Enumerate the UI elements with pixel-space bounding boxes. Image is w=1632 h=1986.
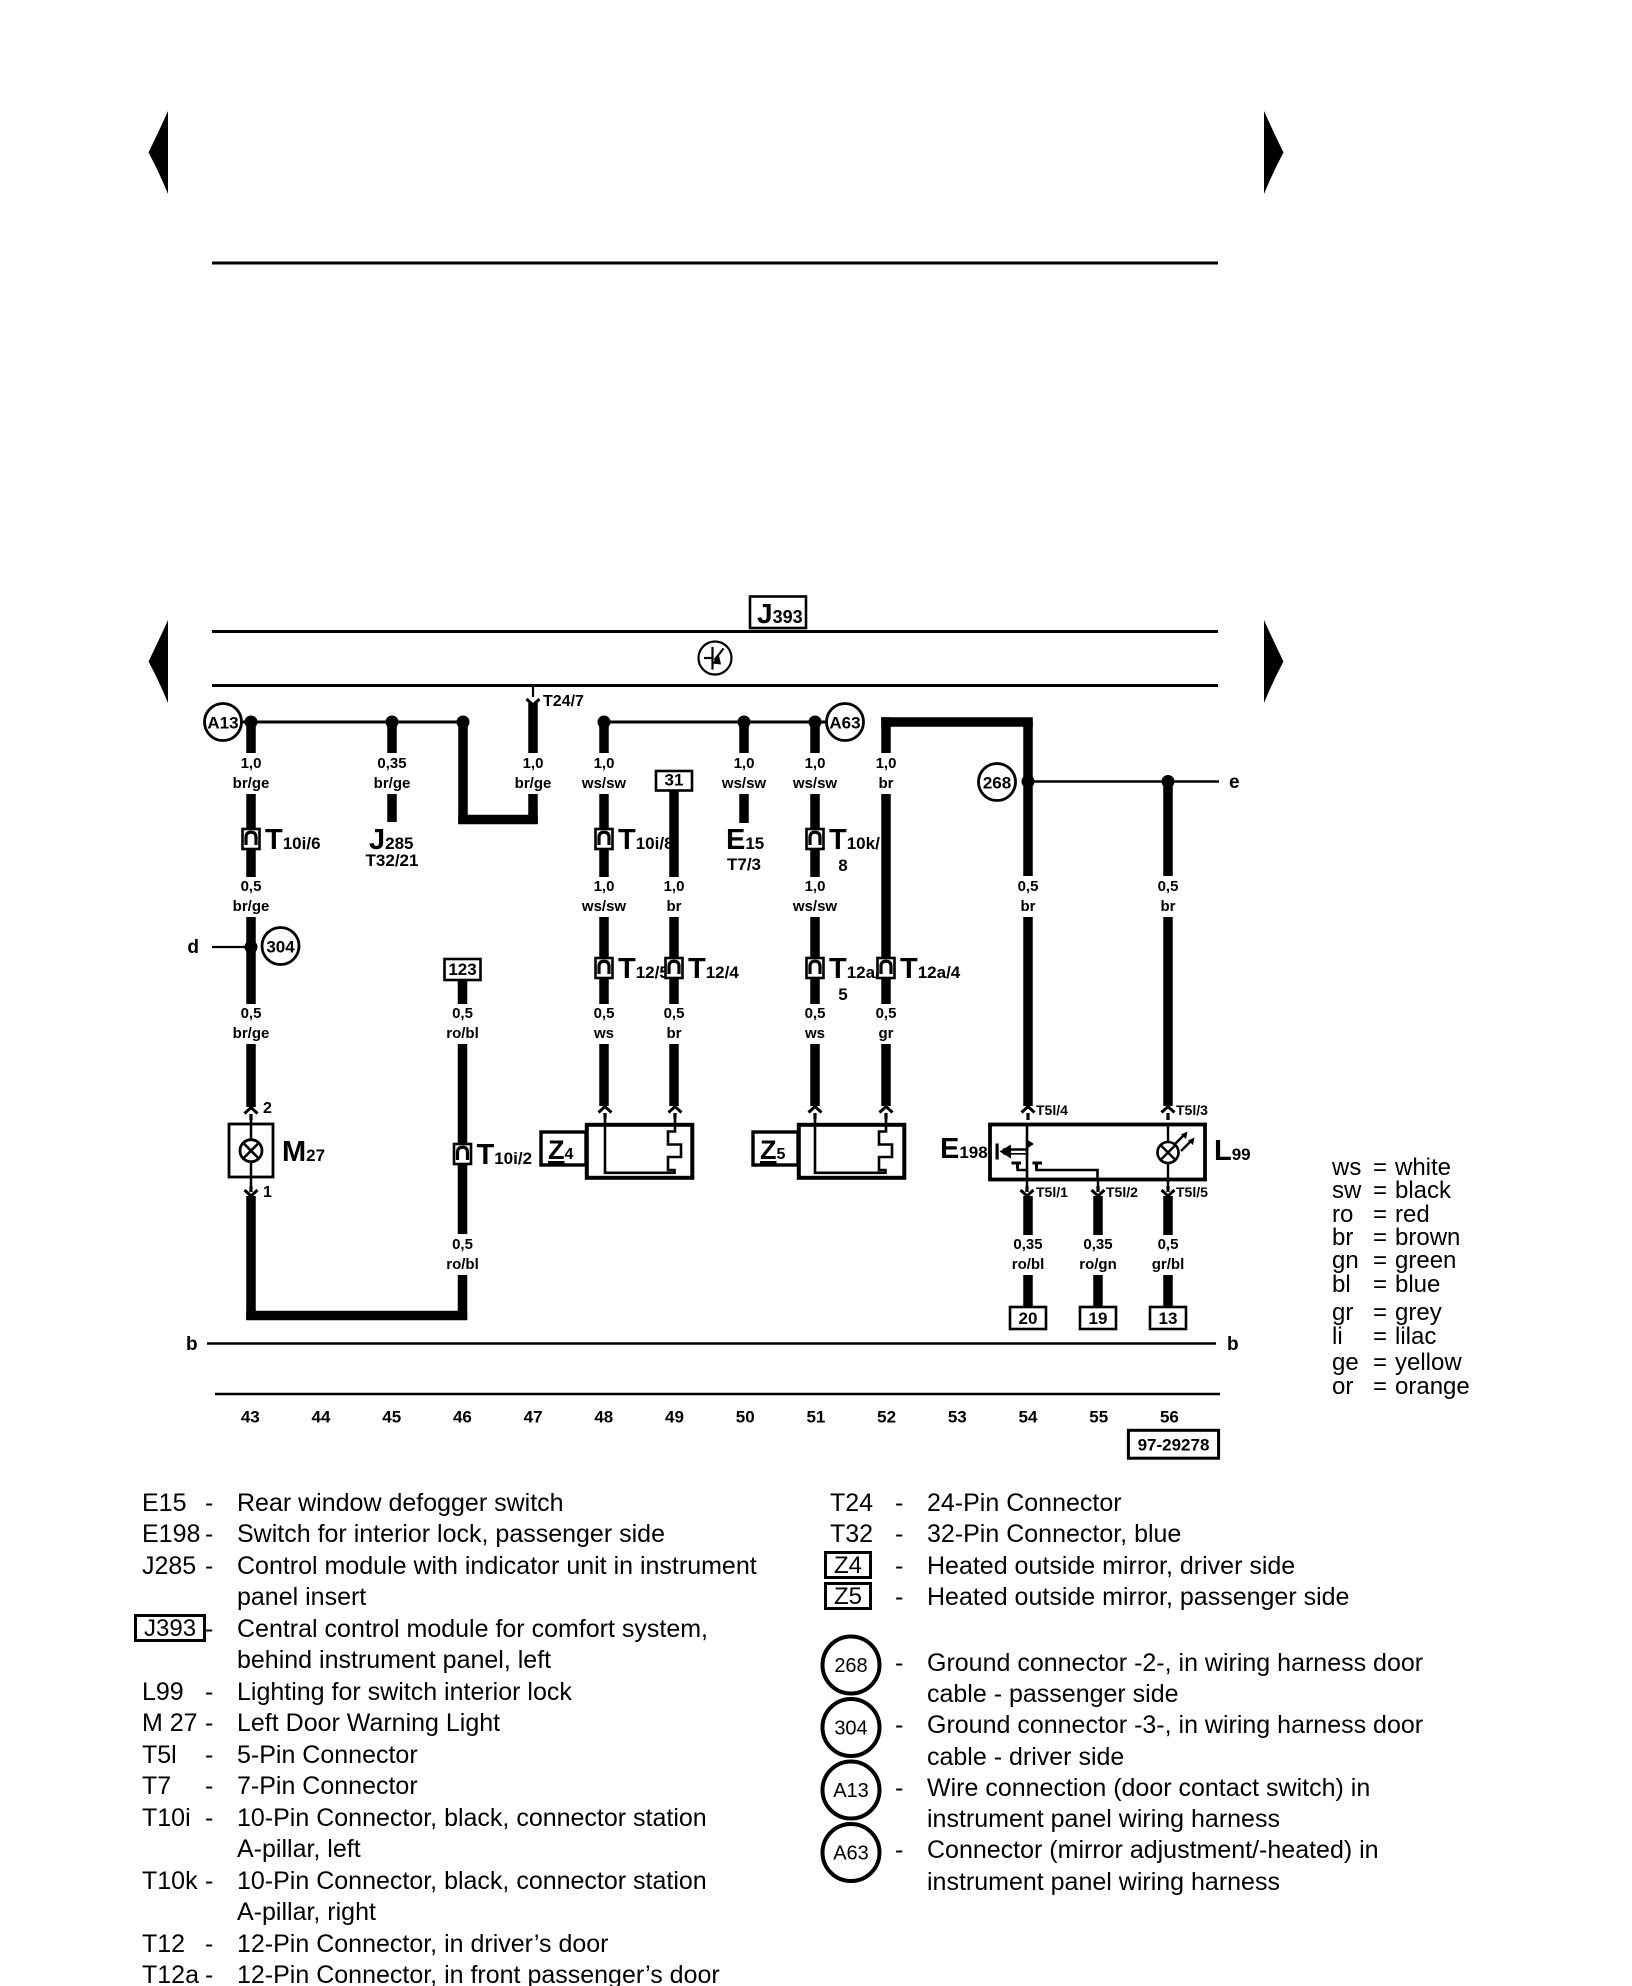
svg-text:d: d bbox=[187, 937, 199, 958]
svg-text:T12a/4: T12a/4 bbox=[900, 953, 961, 985]
svg-text:E15: E15 bbox=[726, 824, 764, 856]
svg-text:T7/3: T7/3 bbox=[727, 855, 761, 874]
svg-text:T32/21: T32/21 bbox=[366, 851, 419, 870]
svg-text:e: e bbox=[1229, 772, 1240, 793]
svg-text:268: 268 bbox=[834, 1655, 867, 1677]
svg-text:T10i/6: T10i/6 bbox=[265, 824, 321, 856]
svg-text:43: 43 bbox=[241, 1408, 260, 1427]
svg-text:304: 304 bbox=[266, 938, 295, 957]
svg-text:T10i/8: T10i/8 bbox=[618, 824, 674, 856]
svg-text:A13: A13 bbox=[833, 1780, 869, 1802]
svg-text:44: 44 bbox=[312, 1408, 331, 1427]
svg-text:A63: A63 bbox=[833, 1843, 869, 1865]
svg-text:L99: L99 bbox=[1214, 1135, 1251, 1167]
svg-text:54: 54 bbox=[1019, 1408, 1038, 1427]
svg-text:b: b bbox=[186, 1334, 198, 1355]
svg-text:55: 55 bbox=[1089, 1408, 1108, 1427]
svg-text:T12a/: T12a/ bbox=[829, 953, 880, 985]
svg-text:A13: A13 bbox=[207, 714, 238, 733]
svg-text:b: b bbox=[1227, 1334, 1239, 1355]
svg-text:268: 268 bbox=[983, 774, 1011, 793]
svg-text:T5l/4: T5l/4 bbox=[1036, 1102, 1068, 1118]
svg-text:T12/4: T12/4 bbox=[688, 953, 739, 985]
svg-text:31: 31 bbox=[665, 771, 684, 790]
svg-text:5: 5 bbox=[838, 985, 847, 1004]
svg-text:T5l/2: T5l/2 bbox=[1106, 1184, 1138, 1200]
svg-text:20: 20 bbox=[1019, 1309, 1038, 1328]
svg-text:123: 123 bbox=[448, 960, 476, 979]
svg-text:97-29278: 97-29278 bbox=[1138, 1436, 1210, 1455]
svg-text:M27: M27 bbox=[282, 1136, 325, 1168]
svg-text:50: 50 bbox=[736, 1408, 755, 1427]
svg-text:1: 1 bbox=[263, 1184, 272, 1201]
svg-text:T10i/2: T10i/2 bbox=[477, 1139, 533, 1171]
svg-text:19: 19 bbox=[1089, 1309, 1108, 1328]
svg-text:T5l/1: T5l/1 bbox=[1036, 1184, 1068, 1200]
svg-text:8: 8 bbox=[838, 856, 847, 875]
svg-text:T5l/5: T5l/5 bbox=[1176, 1184, 1208, 1200]
svg-text:A63: A63 bbox=[829, 714, 860, 733]
svg-text:47: 47 bbox=[524, 1408, 543, 1427]
svg-text:304: 304 bbox=[834, 1718, 867, 1740]
svg-text:13: 13 bbox=[1159, 1309, 1178, 1328]
svg-text:52: 52 bbox=[877, 1408, 896, 1427]
svg-text:T10k/: T10k/ bbox=[829, 824, 880, 856]
svg-text:46: 46 bbox=[453, 1408, 472, 1427]
svg-text:T24/7: T24/7 bbox=[543, 693, 584, 710]
svg-text:51: 51 bbox=[806, 1408, 825, 1427]
svg-text:49: 49 bbox=[665, 1408, 684, 1427]
svg-text:53: 53 bbox=[948, 1408, 967, 1427]
svg-text:T5l/3: T5l/3 bbox=[1176, 1102, 1208, 1118]
svg-text:48: 48 bbox=[594, 1408, 613, 1427]
svg-text:E198: E198 bbox=[940, 1133, 988, 1165]
svg-text:T12/5: T12/5 bbox=[618, 953, 669, 985]
svg-text:45: 45 bbox=[382, 1408, 401, 1427]
svg-text:56: 56 bbox=[1160, 1408, 1179, 1427]
svg-text:2: 2 bbox=[263, 1100, 272, 1117]
